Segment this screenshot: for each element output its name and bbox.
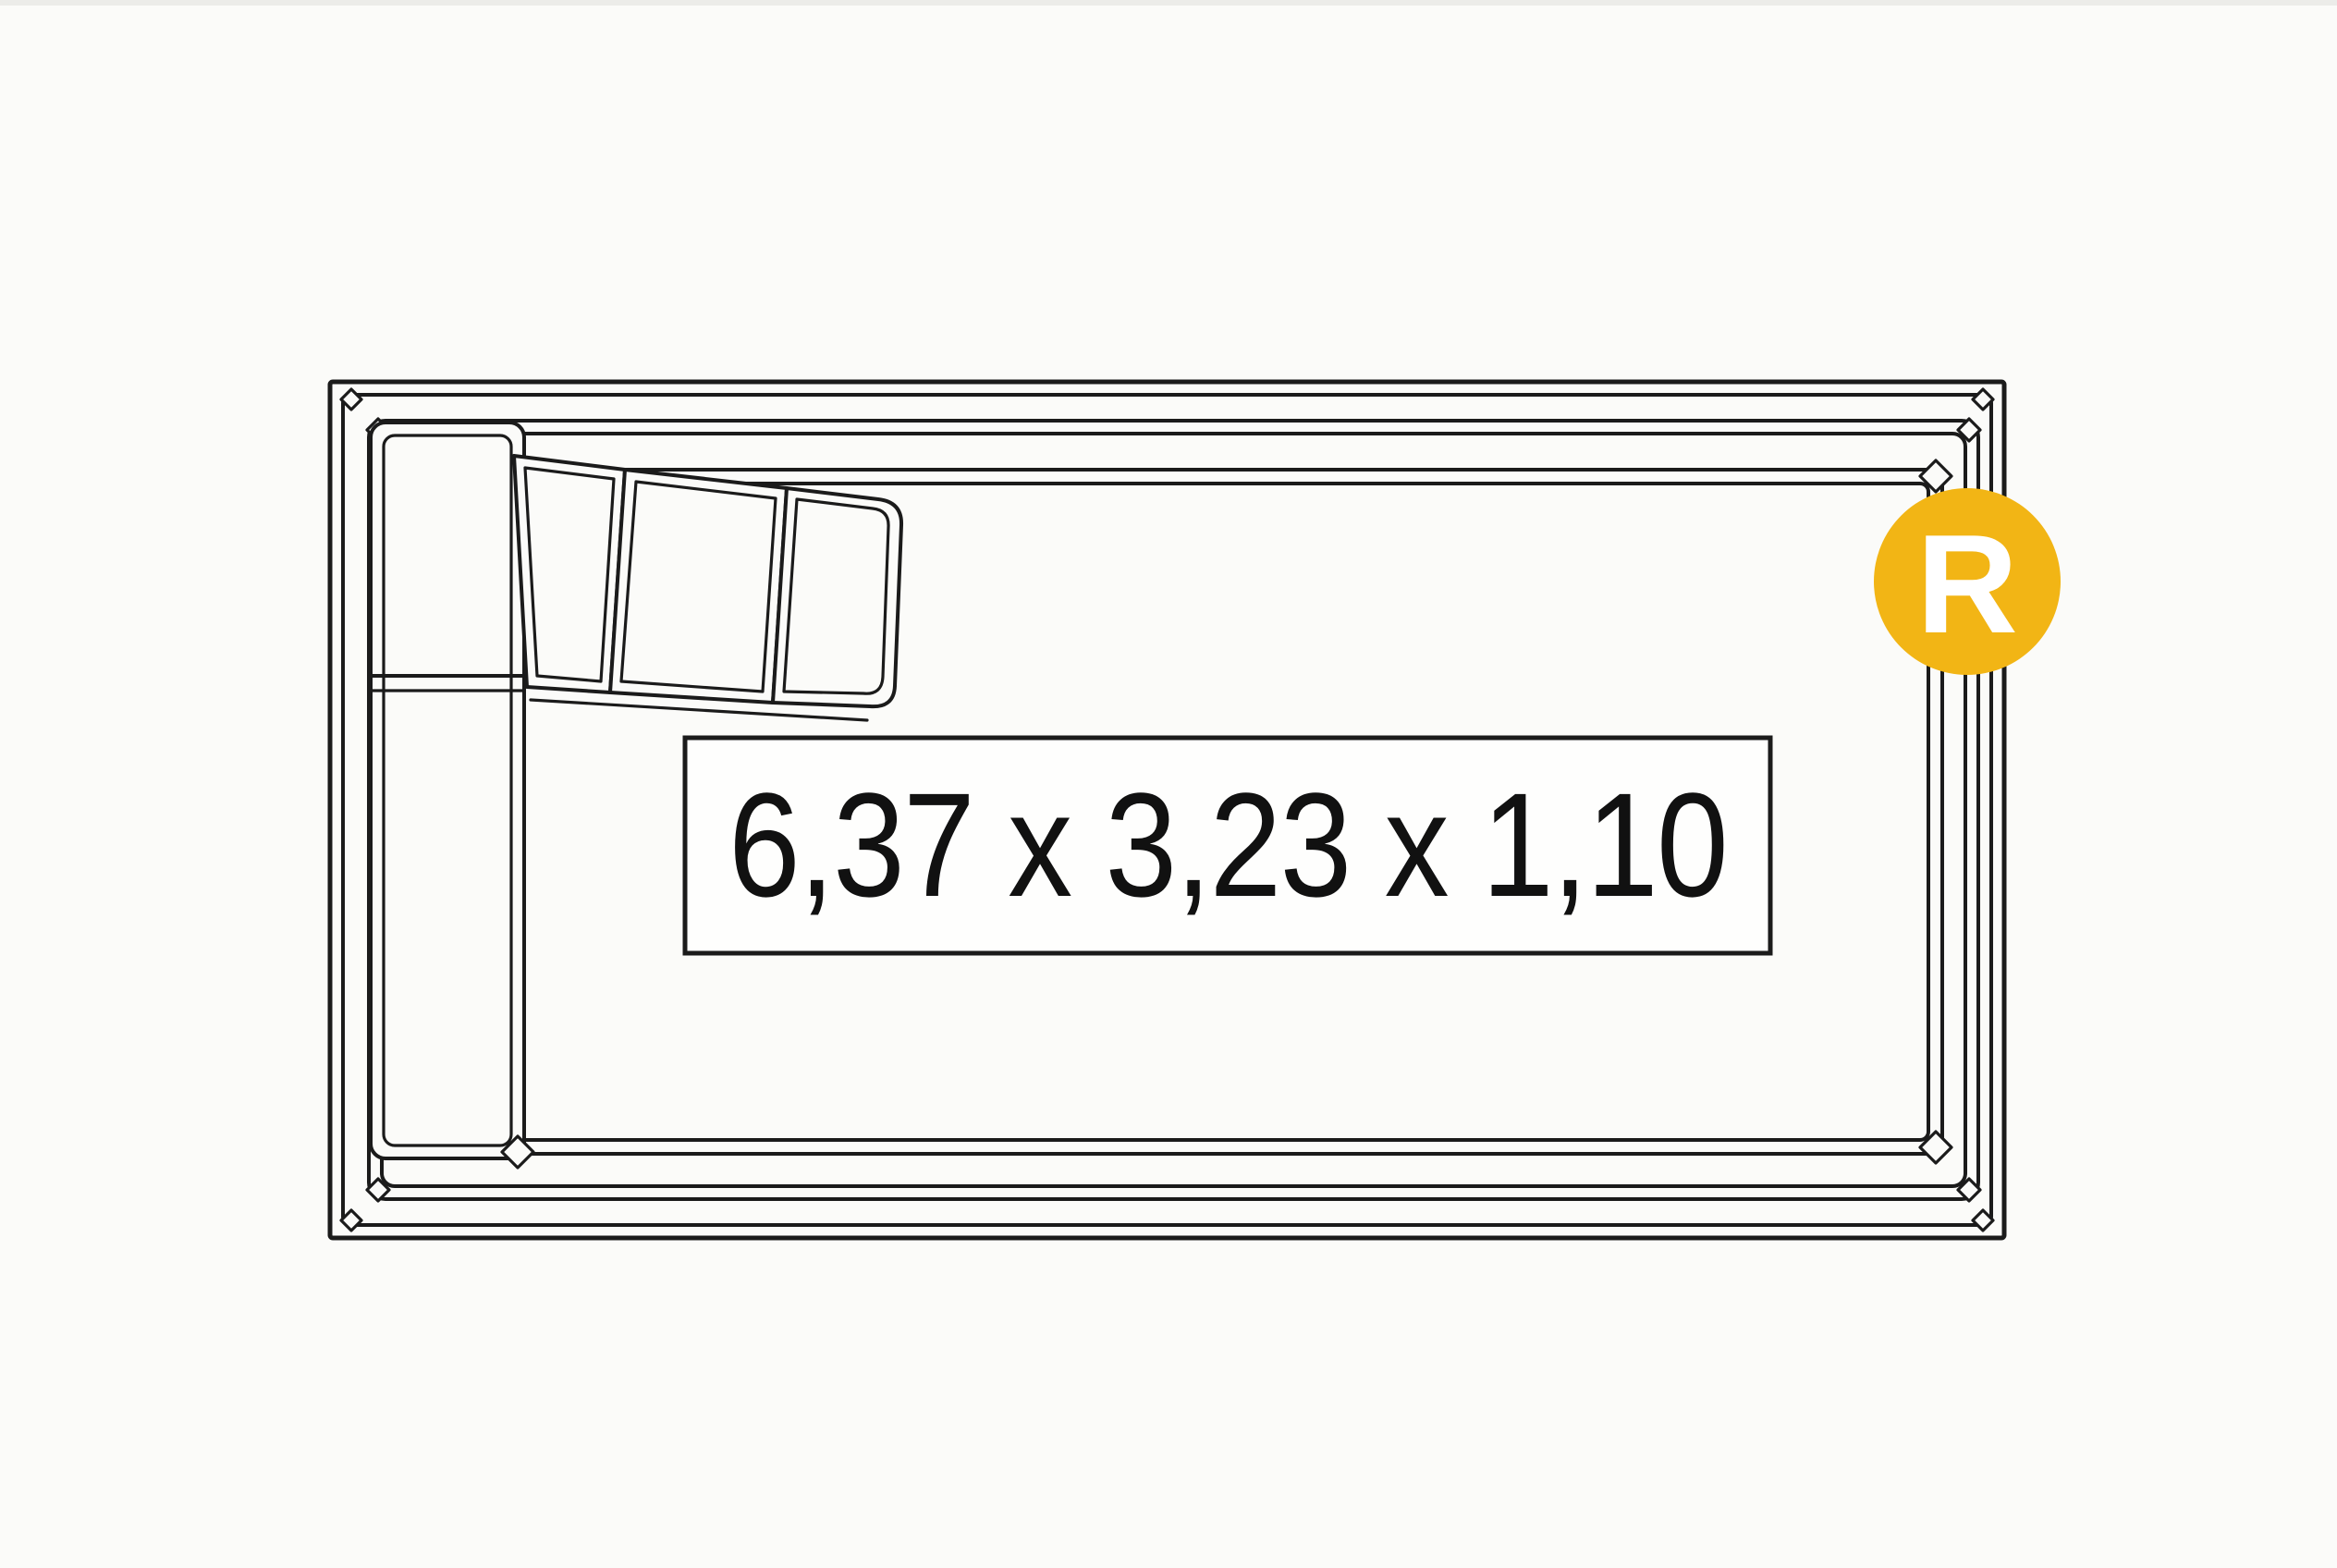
pool-technical-drawing-page: 6,37 x 3,23 x 1,10 R	[0, 0, 2337, 1568]
scan-edge-artifact	[0, 0, 2337, 6]
dimension-text: 6,37 x 3,23 x 1,10	[728, 762, 1727, 927]
bench-outline-outer	[371, 423, 524, 1158]
step-tread-2	[610, 470, 787, 703]
pool-side-bench	[371, 423, 533, 1168]
pool-entry-steps	[514, 456, 901, 720]
r-badge: R	[1874, 488, 2061, 675]
pool-plan-drawing: 6,37 x 3,23 x 1,10 R	[0, 0, 2337, 1568]
dimension-box: 6,37 x 3,23 x 1,10	[685, 738, 1770, 953]
r-badge-letter: R	[1916, 506, 2018, 663]
